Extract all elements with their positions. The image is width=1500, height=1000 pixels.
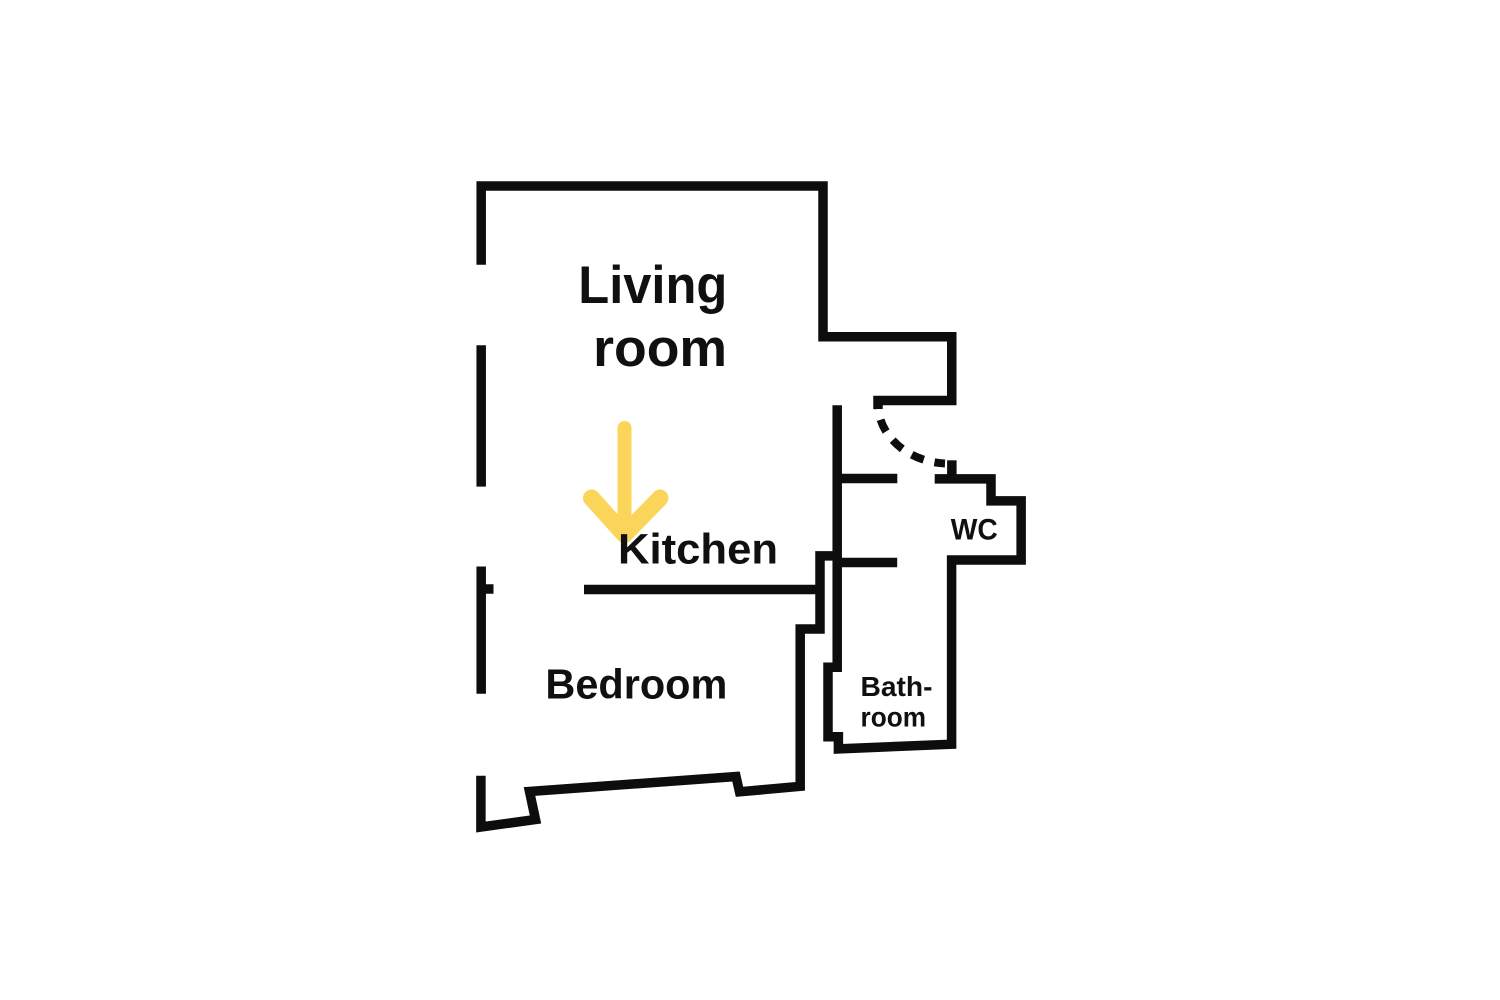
- svg-text:WC: WC: [951, 513, 998, 546]
- svg-text:Bedroom: Bedroom: [545, 660, 727, 707]
- svg-text:Bath-: Bath-: [861, 671, 933, 702]
- svg-text:Living: Living: [578, 256, 727, 315]
- svg-text:room: room: [861, 701, 927, 732]
- svg-text:room: room: [593, 319, 727, 378]
- svg-text:Kitchen: Kitchen: [618, 526, 778, 573]
